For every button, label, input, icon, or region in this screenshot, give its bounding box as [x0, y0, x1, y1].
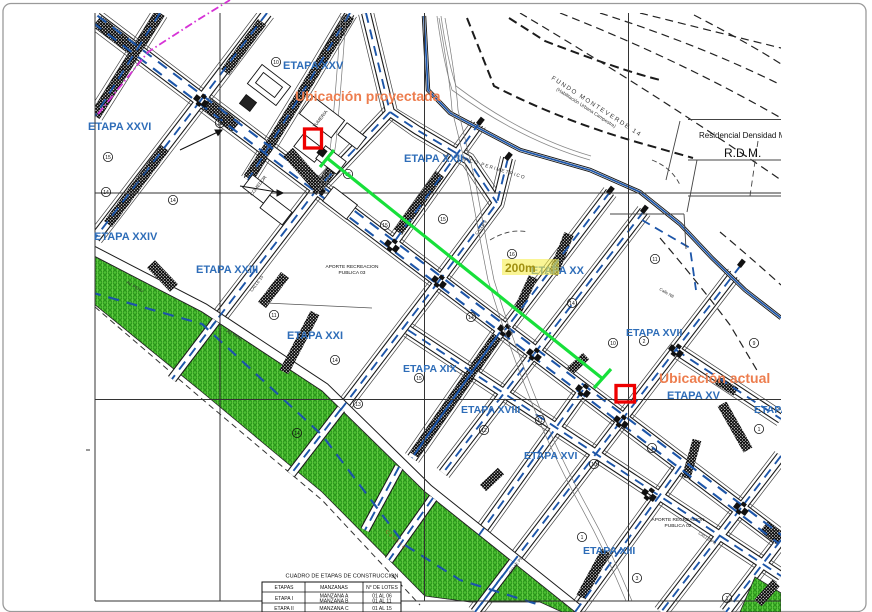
svg-text:01 AL 15: 01 AL 15 [372, 606, 392, 612]
svg-text:ETAPA XIII: ETAPA XIII [583, 545, 635, 557]
svg-text:ETAPA XXV: ETAPA XXV [283, 60, 344, 72]
svg-text:ETAPA XXI: ETAPA XXI [287, 330, 343, 342]
svg-text:ETAPA XXIV: ETAPA XXIV [94, 231, 158, 243]
svg-text:14: 14 [468, 315, 474, 321]
svg-text:PUBLICA 03: PUBLICA 03 [339, 270, 366, 276]
svg-text:15: 15 [440, 217, 446, 223]
svg-text:15: 15 [105, 155, 111, 161]
svg-text:PUBLICA 02: PUBLICA 02 [665, 523, 692, 529]
svg-text:10: 10 [591, 462, 597, 468]
svg-text:ETAPA XVI: ETAPA XVI [524, 450, 578, 462]
svg-text:11: 11 [271, 313, 276, 319]
svg-text:16: 16 [509, 252, 515, 258]
svg-text:1: 1 [651, 446, 654, 452]
svg-text:14: 14 [103, 190, 109, 196]
svg-text:15: 15 [382, 223, 388, 229]
svg-text:MANZANA B: MANZANA B [320, 599, 350, 605]
svg-text:01 AL 11: 01 AL 11 [372, 599, 391, 605]
svg-text:N° DE LOTES: N° DE LOTES [366, 585, 398, 591]
svg-text:15: 15 [416, 376, 422, 382]
svg-text:CUADRO DE ETAPAS DE CONSTRUCCI: CUADRO DE ETAPAS DE CONSTRUCCION [286, 574, 399, 580]
svg-text:Residencial Densidad M: Residencial Densidad M [699, 131, 786, 140]
svg-text:12: 12 [481, 428, 487, 434]
svg-text:14: 14 [170, 198, 176, 204]
svg-text:APORTE RECREACION: APORTE RECREACION [326, 264, 379, 270]
svg-text:ETAPA XIX: ETAPA XIX [403, 363, 456, 375]
svg-text:R.D.M.: R.D.M. [724, 146, 761, 160]
svg-text:Ubicación proyectada: Ubicación proyectada [295, 88, 441, 104]
svg-text:MANZANA C: MANZANA C [319, 606, 349, 612]
svg-text:200m: 200m [505, 261, 536, 275]
svg-text:MANZANAS: MANZANAS [320, 585, 348, 591]
svg-text:10: 10 [610, 341, 616, 347]
svg-text:ETAPAS: ETAPAS [275, 585, 295, 591]
svg-text:1: 1 [581, 535, 584, 541]
svg-text:11: 11 [537, 418, 542, 424]
svg-text:ETAPA XXVI: ETAPA XXVI [88, 121, 151, 133]
svg-text:APORTE RECREACION: APORTE RECREACION [652, 517, 705, 523]
svg-text:1: 1 [726, 596, 729, 602]
svg-text:11: 11 [652, 257, 657, 263]
svg-text:14: 14 [332, 358, 338, 364]
svg-text:ETAPA XXII: ETAPA XXII [404, 153, 463, 165]
svg-text:1: 1 [758, 427, 761, 433]
svg-text:ETAPA II: ETAPA II [274, 606, 294, 612]
svg-text:14: 14 [294, 431, 300, 437]
svg-text:10: 10 [273, 60, 279, 66]
svg-text:ETAPA I: ETAPA I [275, 596, 293, 602]
svg-text:9: 9 [753, 341, 756, 347]
svg-text:3: 3 [636, 576, 639, 582]
svg-text:ETAPA XVII: ETAPA XVII [626, 327, 682, 339]
svg-text:ETAPA XVIII: ETAPA XVIII [461, 404, 520, 416]
svg-text:Ubicación actual: Ubicación actual [659, 370, 770, 386]
svg-text:14: 14 [569, 301, 575, 307]
svg-text:16: 16 [217, 121, 223, 127]
svg-text:ETAPA XXIII: ETAPA XXIII [196, 264, 258, 276]
svg-text:2: 2 [643, 339, 646, 345]
svg-text:ETAPA XV: ETAPA XV [667, 390, 721, 402]
svg-text:13: 13 [355, 402, 361, 408]
